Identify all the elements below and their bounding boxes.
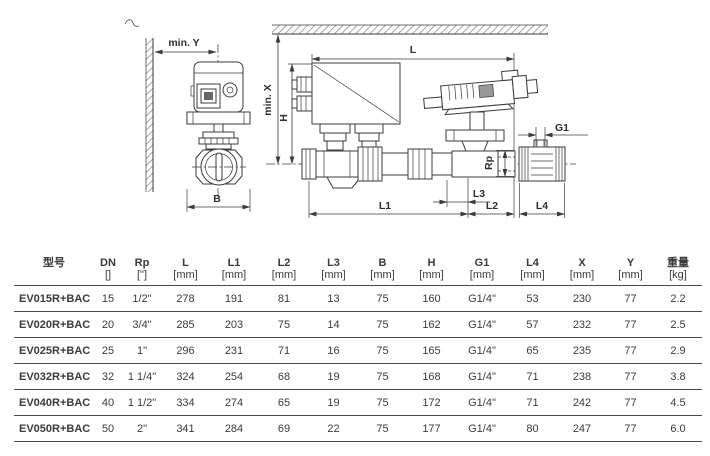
column-header: DN[] [94,257,122,286]
value-cell: 284 [209,416,259,442]
dim-label-l4: L4 [536,200,548,212]
revision-mark [125,20,139,27]
value-cell: 40 [94,390,122,416]
table-header-row: 型号DN[]Rp["]L[mm]L1[mm]L2[mm]L3[mm]B[mm]H… [14,257,702,286]
value-cell: 71 [508,364,557,390]
value-cell: 75 [358,286,407,312]
value-cell: 247 [557,416,607,442]
value-cell: 191 [209,286,259,312]
model-cell: EV025R+BAC [14,338,94,364]
value-cell: 238 [557,364,607,390]
column-header: B[mm] [358,257,407,286]
value-cell: 77 [607,312,654,338]
table-row: EV050R+BAC502"341284692275177G1/4"802477… [14,416,702,442]
dim-label-l: L [410,44,417,56]
value-cell: 80 [508,416,557,442]
dim-label-g1: G1 [555,122,569,134]
column-header: L2[mm] [259,257,309,286]
value-cell: 75 [358,364,407,390]
value-cell: 1 1/2" [122,390,162,416]
value-cell: 81 [259,286,309,312]
column-header: L[mm] [162,257,209,286]
model-cell: EV020R+BAC [14,312,94,338]
value-cell: 242 [557,390,607,416]
value-cell: 75 [358,338,407,364]
value-cell: G1/4" [456,338,508,364]
front-view: min. Y [125,20,250,212]
value-cell: 3.8 [654,364,702,390]
value-cell: 3/4" [122,312,162,338]
table-row: EV032R+BAC321 1/4"324254681975168G1/4"71… [14,364,702,390]
balancing-actuator [422,69,539,117]
value-cell: 230 [557,286,607,312]
value-cell: 32 [94,364,122,390]
dim-label-b: B [213,193,221,205]
value-cell: G1/4" [456,286,508,312]
value-cell: 285 [162,312,209,338]
value-cell: 1/2" [122,286,162,312]
valve-bracket-front [187,112,250,124]
value-cell: G1/4" [456,390,508,416]
value-cell: 160 [407,286,456,312]
dim-label-min-y: min. Y [168,37,199,49]
value-cell: 1 1/4" [122,364,162,390]
balancing-valve-bonnet [446,112,504,151]
value-cell: 278 [162,286,209,312]
table-body: EV015R+BAC151/2"278191811375160G1/4"5323… [14,286,702,442]
side-view: min. X H L [262,25,588,218]
value-cell: 57 [508,312,557,338]
value-cell: 77 [607,364,654,390]
value-cell: 274 [209,390,259,416]
dimension-table: 型号DN[]Rp["]L[mm]L1[mm]L2[mm]L3[mm]B[mm]H… [14,257,702,442]
dim-label-min-x: min. X [262,84,274,116]
actuator-side [292,63,400,124]
dim-label-l2: L2 [486,200,498,212]
value-cell: 341 [162,416,209,442]
value-cell: G1/4" [456,312,508,338]
value-cell: 235 [557,338,607,364]
valve-body-front [192,149,246,185]
column-header: H[mm] [407,257,456,286]
value-cell: 77 [607,286,654,312]
value-cell: 77 [607,416,654,442]
dim-label-h: H [278,114,290,122]
value-cell: 19 [309,364,358,390]
value-cell: 69 [259,416,309,442]
column-header: 型号 [14,257,94,286]
value-cell: 2.2 [654,286,702,312]
value-cell: 22 [309,416,358,442]
value-cell: 15 [94,286,122,312]
value-cell: 50 [94,416,122,442]
valve-adapters [320,124,383,150]
datasheet-page: min. Y [0,0,710,456]
value-cell: 254 [209,364,259,390]
value-cell: 13 [309,286,358,312]
column-header: Rp["] [122,257,162,286]
value-cell: 1" [122,338,162,364]
value-cell: 68 [259,364,309,390]
value-cell: 168 [407,364,456,390]
column-header: 重量[kg] [654,257,702,286]
dim-label-l1: L1 [379,200,391,212]
value-cell: 53 [508,286,557,312]
value-cell: 232 [557,312,607,338]
column-header: Y[mm] [607,257,654,286]
value-cell: 25 [94,338,122,364]
value-cell: 2.9 [654,338,702,364]
value-cell: G1/4" [456,364,508,390]
value-cell: 65 [508,338,557,364]
value-cell: 77 [607,338,654,364]
value-cell: 172 [407,390,456,416]
table-row: EV040R+BAC401 1/2"334274651975172G1/4"71… [14,390,702,416]
value-cell: 14 [309,312,358,338]
value-cell: 20 [94,312,122,338]
column-header: X[mm] [557,257,607,286]
value-cell: G1/4" [456,416,508,442]
value-cell: 2.5 [654,312,702,338]
table-row: EV025R+BAC251"296231711675165G1/4"652357… [14,338,702,364]
value-cell: 75 [358,416,407,442]
value-cell: 203 [209,312,259,338]
model-cell: EV032R+BAC [14,364,94,390]
threaded-fitting [519,140,565,181]
value-cell: 231 [209,338,259,364]
column-header: L4[mm] [508,257,557,286]
value-cell: 296 [162,338,209,364]
dim-label-l3: L3 [473,188,485,200]
model-cell: EV015R+BAC [14,286,94,312]
value-cell: 75 [259,312,309,338]
value-cell: 71 [259,338,309,364]
value-cell: 65 [259,390,309,416]
value-cell: 165 [407,338,456,364]
value-cell: 16 [309,338,358,364]
table-row: EV015R+BAC151/2"278191811375160G1/4"5323… [14,286,702,312]
value-cell: 77 [607,390,654,416]
column-header: G1[mm] [456,257,508,286]
valve-stem-front [199,124,238,149]
column-header: L3[mm] [309,257,358,286]
value-cell: 324 [162,364,209,390]
dimension-drawing: min. Y [0,0,710,252]
wall-hatch [146,38,153,192]
model-cell: EV050R+BAC [14,416,94,442]
model-cell: EV040R+BAC [14,390,94,416]
dim-label-rp: Rp [483,156,495,170]
actuator-front [191,62,243,112]
value-cell: 6.0 [654,416,702,442]
value-cell: 334 [162,390,209,416]
value-cell: 4.5 [654,390,702,416]
table-row: EV020R+BAC203/4"285203751475162G1/4"5723… [14,312,702,338]
value-cell: 75 [358,312,407,338]
value-cell: 19 [309,390,358,416]
value-cell: 71 [508,390,557,416]
value-cell: 75 [358,390,407,416]
value-cell: 2" [122,416,162,442]
value-cell: 162 [407,312,456,338]
value-cell: 177 [407,416,456,442]
column-header: L1[mm] [209,257,259,286]
ceiling-hatch [272,25,548,34]
